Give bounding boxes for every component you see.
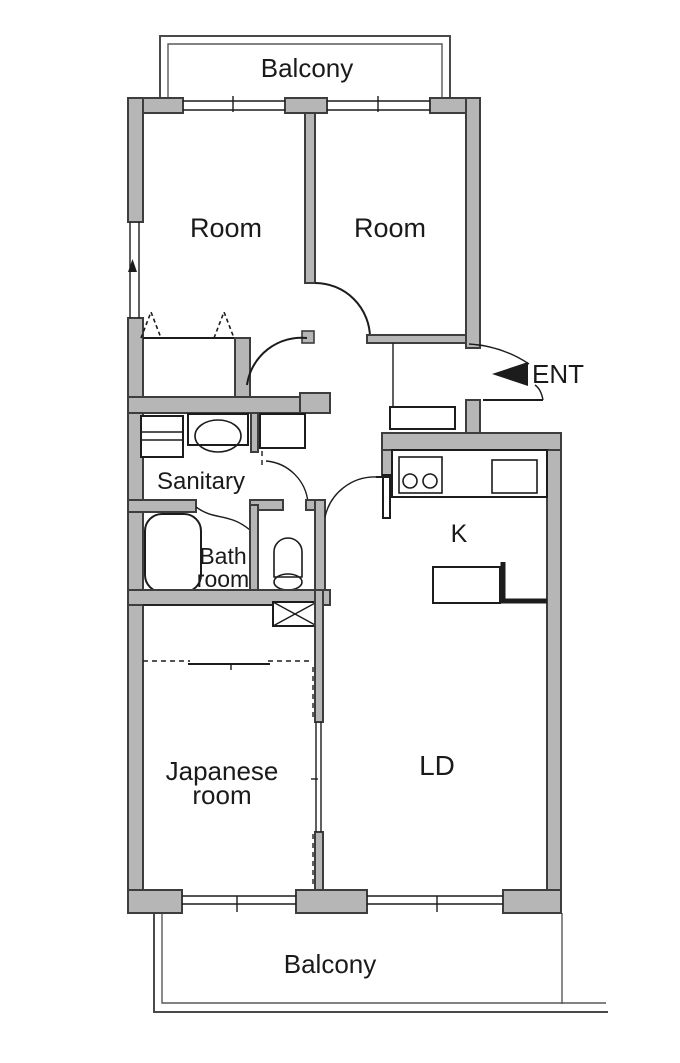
- wall-top-center-block: [285, 98, 327, 113]
- wall-between-rooms: [305, 113, 315, 283]
- window-left: [128, 222, 139, 318]
- wall-kitchen-stub: [382, 450, 392, 475]
- bedrooms: Room Room: [141, 113, 466, 413]
- shoe-cabinet: [390, 407, 455, 429]
- balcony-bottom: Balcony: [154, 913, 608, 1012]
- wall-sanitary-right-stub: [251, 413, 258, 452]
- bathroom: Bath room: [128, 500, 250, 592]
- sanitary-label: Sanitary: [157, 468, 245, 495]
- wall-left-upper: [128, 98, 143, 222]
- wall-sanitary-top: [128, 397, 318, 413]
- kitchen: K: [325, 450, 547, 603]
- ld-label: LD: [419, 750, 455, 781]
- sanitary-door-arc: [266, 461, 308, 503]
- counter-edge: [503, 562, 547, 601]
- wall-bottom-center-block: [296, 890, 367, 913]
- floor-plan: Balcony Balcony: [0, 0, 680, 1063]
- balcony-bottom-outer-rail: [154, 913, 608, 1012]
- entrance-arrow-icon: [492, 362, 528, 386]
- wall-right-upper: [466, 98, 480, 348]
- wall-room-right-bottom: [367, 335, 466, 343]
- hall-door-arc: [247, 338, 307, 385]
- closet-door-swing-right: [214, 312, 234, 338]
- window-top-right: [327, 96, 430, 112]
- wall-partition-upper: [315, 590, 323, 722]
- washing-machine: [141, 416, 183, 457]
- window-bottom-right: [367, 896, 503, 912]
- wall-kitchen-top: [382, 433, 561, 450]
- wall-right-entry-stub: [466, 400, 480, 437]
- room-right-label: Room: [354, 213, 426, 243]
- kitchen-label: K: [451, 520, 468, 548]
- wall-partition-lower: [315, 832, 323, 890]
- wall-bottom-left-block: [128, 890, 182, 913]
- floor-plan-page: Balcony Balcony: [0, 0, 680, 1063]
- wall-bath-top: [128, 500, 196, 512]
- ld-door-arc: [325, 477, 376, 517]
- hall-storage-cabinet: [260, 414, 305, 448]
- room-right-door-arc: [315, 283, 370, 338]
- entrance: ENT: [390, 343, 584, 429]
- room-left-label: Room: [190, 213, 262, 243]
- entrance-label: ENT: [532, 359, 584, 389]
- balcony-top-label: Balcony: [261, 53, 354, 83]
- wall-kitchen-thin: [383, 475, 390, 518]
- window-top-left: [183, 96, 285, 112]
- room-left-closet: [141, 312, 235, 338]
- living-dining: LD: [419, 750, 455, 781]
- wall-bottom-right-block: [503, 890, 561, 913]
- balcony-bottom-label: Balcony: [284, 949, 377, 979]
- toilet-bowl: [274, 538, 302, 577]
- japanese-room: Japanese room: [143, 661, 313, 810]
- japanese-ld-partition: [311, 590, 323, 890]
- counter-peninsula: [433, 567, 500, 603]
- balcony-top: Balcony: [160, 36, 450, 98]
- balcony-bottom-inner-rail: [162, 913, 606, 1003]
- sanitary-block: Sanitary: [128, 393, 330, 503]
- wall-corridor-pier: [300, 393, 330, 413]
- wall-right-lower: [547, 450, 561, 890]
- service-band: [128, 590, 330, 626]
- bath-folding-door: [196, 507, 250, 530]
- bathtub: [145, 514, 201, 592]
- window-bottom-left: [182, 896, 296, 912]
- bathroom-label-line2: room: [197, 566, 249, 592]
- japanese-room-label-line2: room: [192, 780, 251, 810]
